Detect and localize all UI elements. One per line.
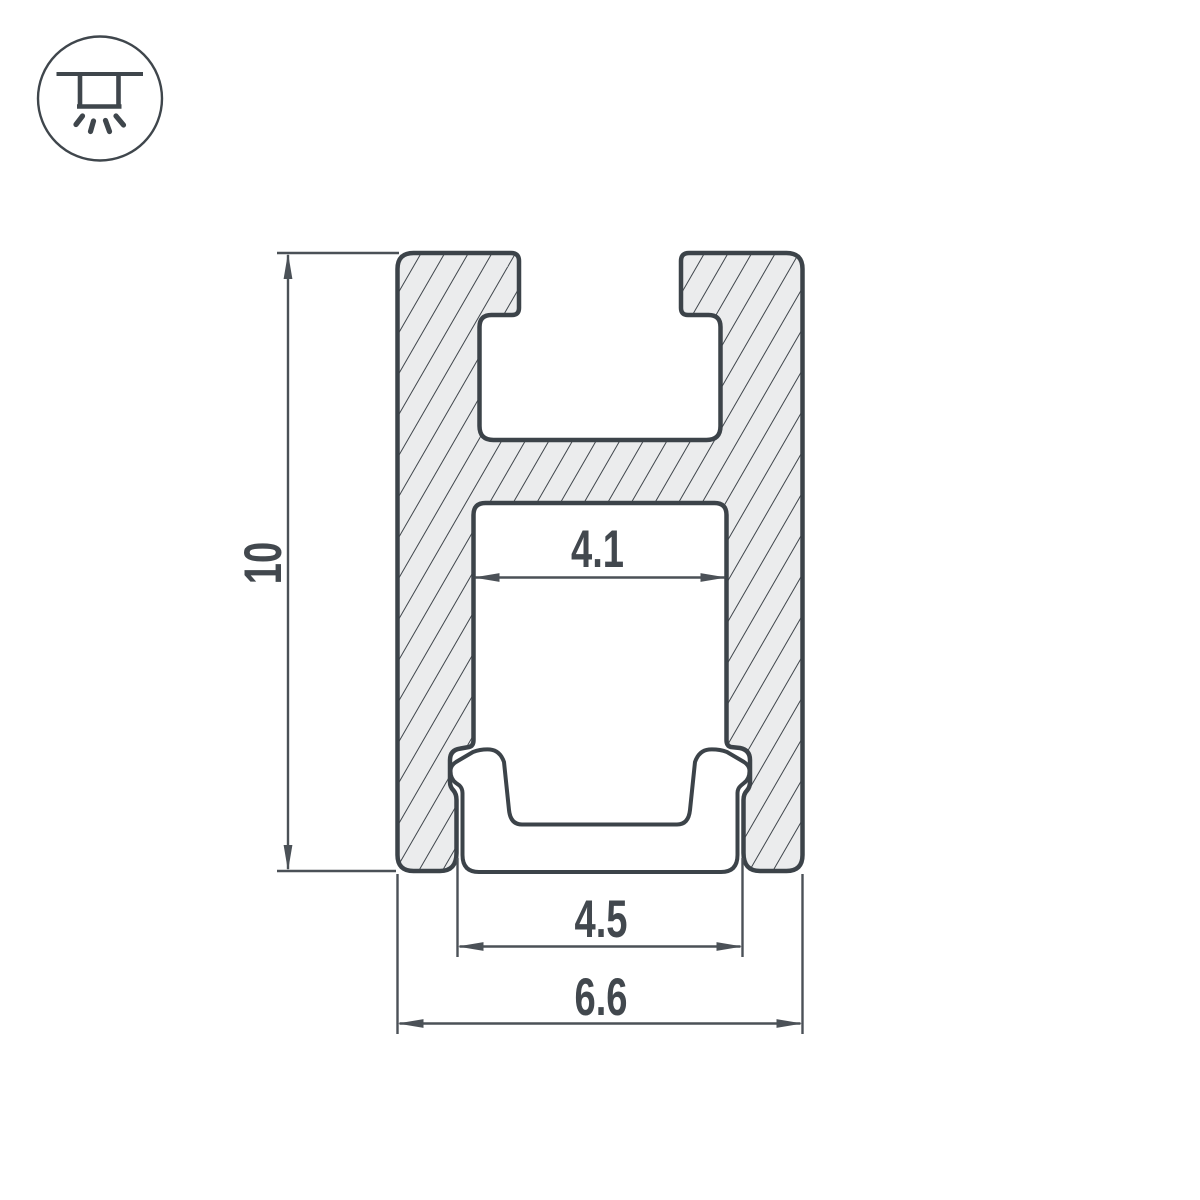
svg-text:10: 10 (233, 542, 293, 584)
svg-text:6.6: 6.6 (574, 967, 627, 1027)
svg-text:4.5: 4.5 (574, 889, 627, 949)
svg-text:4.1: 4.1 (571, 519, 624, 579)
